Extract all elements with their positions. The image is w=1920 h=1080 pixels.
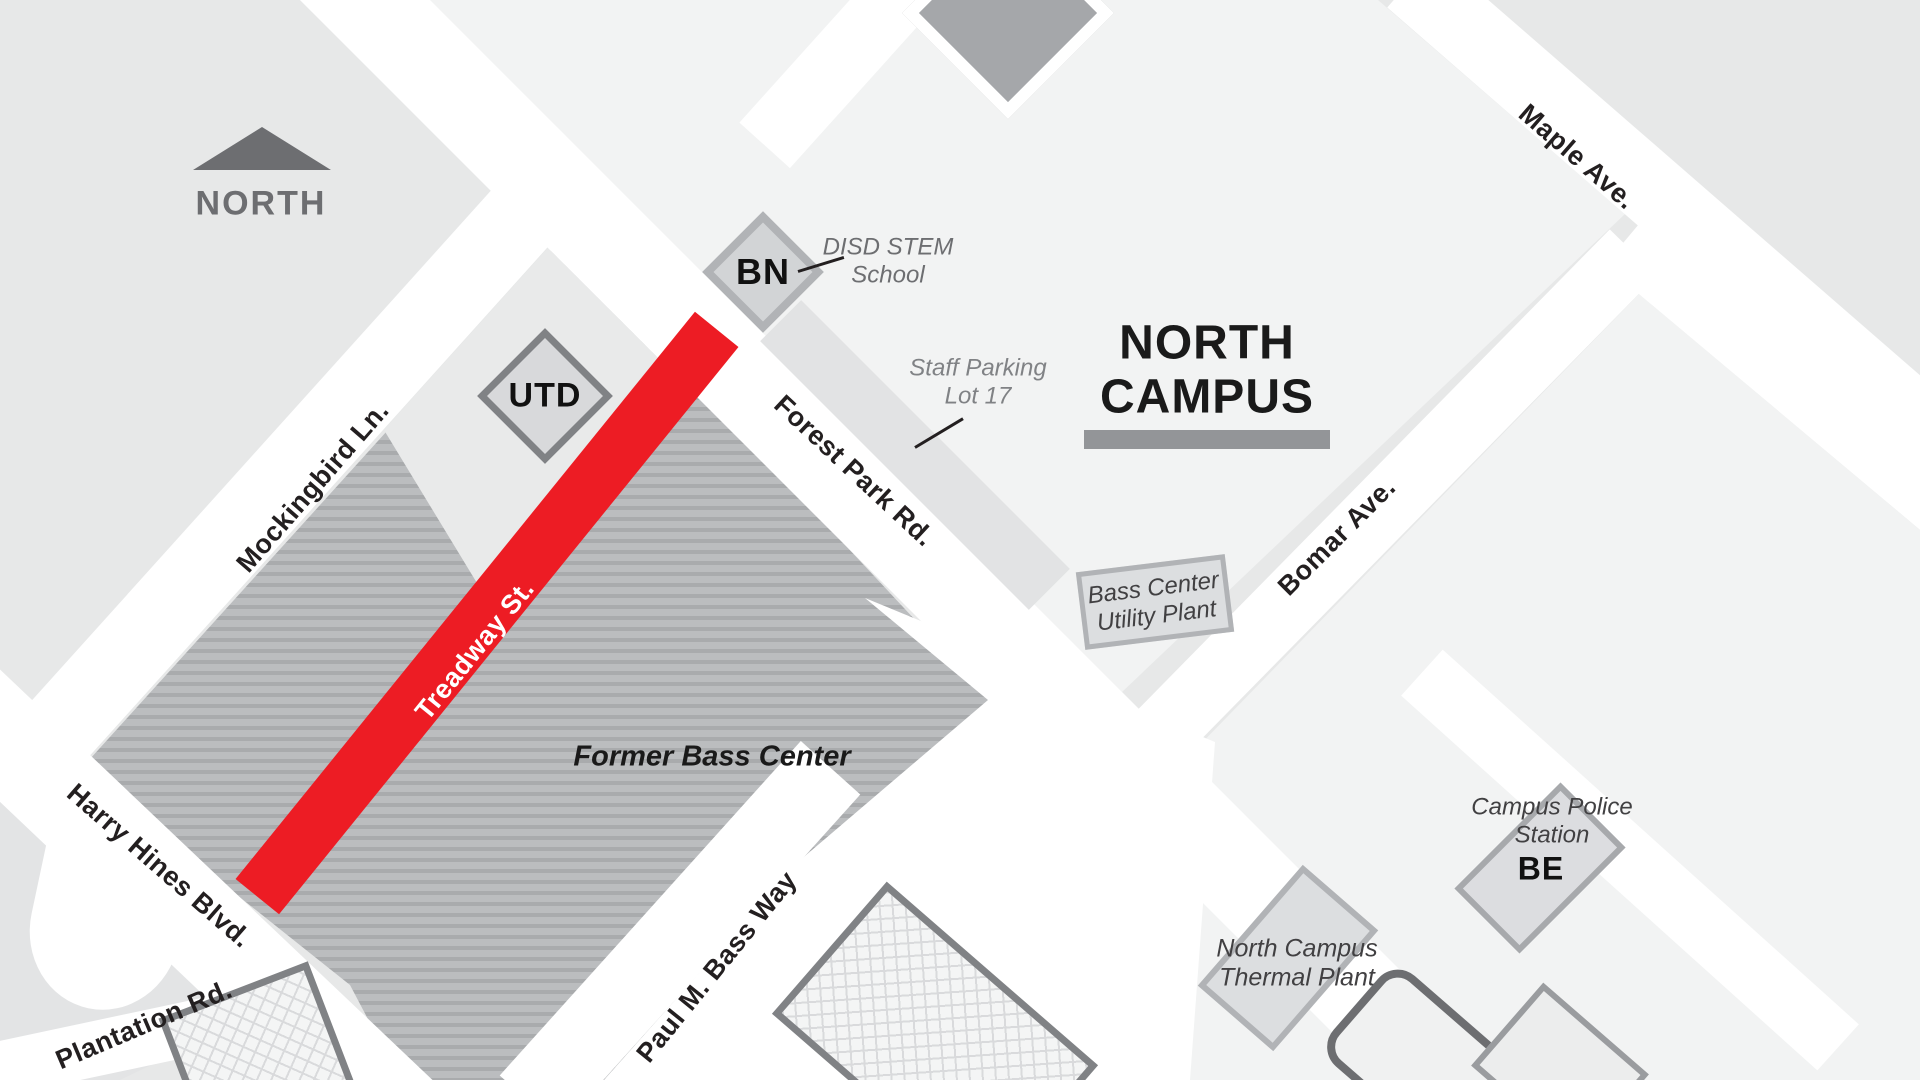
campus-map: BN UTD Bass Center Utility Plant BE Camp… <box>0 0 1920 1080</box>
map-title-line1: NORTH <box>1100 316 1314 370</box>
map-title-underline <box>1084 430 1330 449</box>
police-station-label: Campus Police Station <box>1471 793 1632 848</box>
staff-parking-label: Staff Parking Lot 17 <box>909 354 1046 409</box>
map-title: NORTH CAMPUS <box>1100 316 1314 424</box>
building-utd-code: UTD <box>509 377 582 416</box>
building-be-code: BE <box>1518 851 1564 888</box>
former-bass-center-label: Former Bass Center <box>573 741 850 774</box>
compass-label: NORTH <box>196 185 327 224</box>
map-title-line2: CAMPUS <box>1100 370 1314 424</box>
thermal-plant-label: North Campus Thermal Plant <box>1216 934 1377 992</box>
building-bn-code: BN <box>736 251 790 293</box>
compass-north-icon <box>193 127 331 170</box>
disd-stem-school-label: DISD STEM School <box>823 233 954 288</box>
